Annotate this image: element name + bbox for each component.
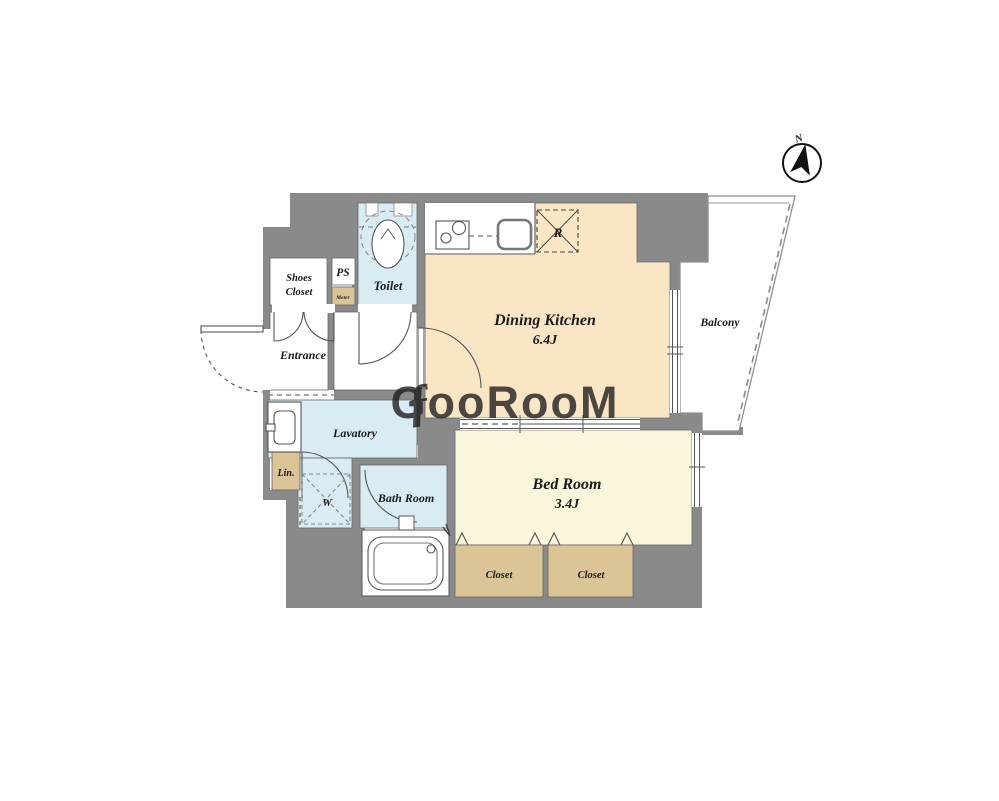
toilet-cistern-2	[394, 203, 412, 216]
opening-entry	[262, 329, 271, 390]
wall-shoes-ps-divider	[327, 258, 332, 305]
wall-bath-top	[360, 458, 455, 465]
tub-surround	[362, 530, 449, 596]
wall-top	[290, 193, 637, 203]
toilet-bowl-icon	[372, 220, 404, 268]
label-ps: PS	[336, 267, 349, 279]
compass-icon: N	[783, 133, 821, 182]
wall-balcony-pier-top	[670, 262, 680, 290]
label-shoes-closet: Closet	[286, 287, 314, 298]
wall-left-upper	[263, 258, 270, 329]
label-closet-right: Closet	[578, 570, 606, 581]
kitchen-counter	[425, 203, 535, 254]
label-bath-room: Bath Room	[377, 491, 434, 505]
label-toilet: Toilet	[374, 279, 403, 293]
label-dining-kitchen: Dining Kitchen	[493, 312, 596, 329]
counter-top	[425, 203, 535, 254]
window-bedroom	[692, 433, 702, 507]
wall-entrance-hall	[328, 312, 334, 390]
label-shoes: Shoes	[286, 273, 312, 284]
window-kitchen-balcony	[670, 290, 680, 413]
label-bed-room-size: 3.4J	[554, 497, 581, 512]
bath-step	[399, 516, 414, 530]
label-dining-kitchen-size: 6.4J	[533, 333, 559, 348]
wall-closet-divider	[543, 545, 548, 597]
wall-topleft-step	[263, 227, 290, 258]
label-closet-left: Closet	[486, 570, 514, 581]
entry-door-arc	[201, 330, 263, 392]
wall-topleft-fill	[290, 203, 360, 258]
wall-bath-left	[352, 458, 360, 530]
watermark-text: GooRooM	[391, 377, 620, 428]
washbasin	[266, 402, 301, 452]
opening-toilet	[358, 304, 412, 313]
room-lavatory-alcove	[298, 458, 352, 528]
bathtub	[362, 524, 450, 596]
entry-door-leaf	[201, 326, 263, 332]
floor-plan-svg: ƒ GooRooM Dining Kitchen 6.4J Bed Room 3…	[0, 0, 999, 801]
label-bed-room: Bed Room	[532, 476, 602, 493]
label-washer-mark: W	[322, 498, 332, 509]
opening-shoes	[272, 304, 335, 313]
washbasin-handle	[266, 424, 275, 431]
wall-bottom	[290, 597, 702, 608]
label-refrigerator-mark: R	[553, 225, 563, 240]
label-entrance: Entrance	[279, 348, 327, 362]
label-linen: Lin.	[277, 468, 295, 479]
label-meter-box: Meter	[335, 295, 350, 301]
label-balcony: Balcony	[700, 317, 741, 329]
floor-plan-page: ƒ GooRooM Dining Kitchen 6.4J Bed Room 3…	[0, 0, 999, 801]
wall-top-right-block	[637, 193, 708, 262]
label-lavatory: Lavatory	[332, 426, 378, 440]
watermark: ƒ GooRooM	[391, 373, 620, 433]
wall-closet-right-fill	[633, 545, 692, 597]
